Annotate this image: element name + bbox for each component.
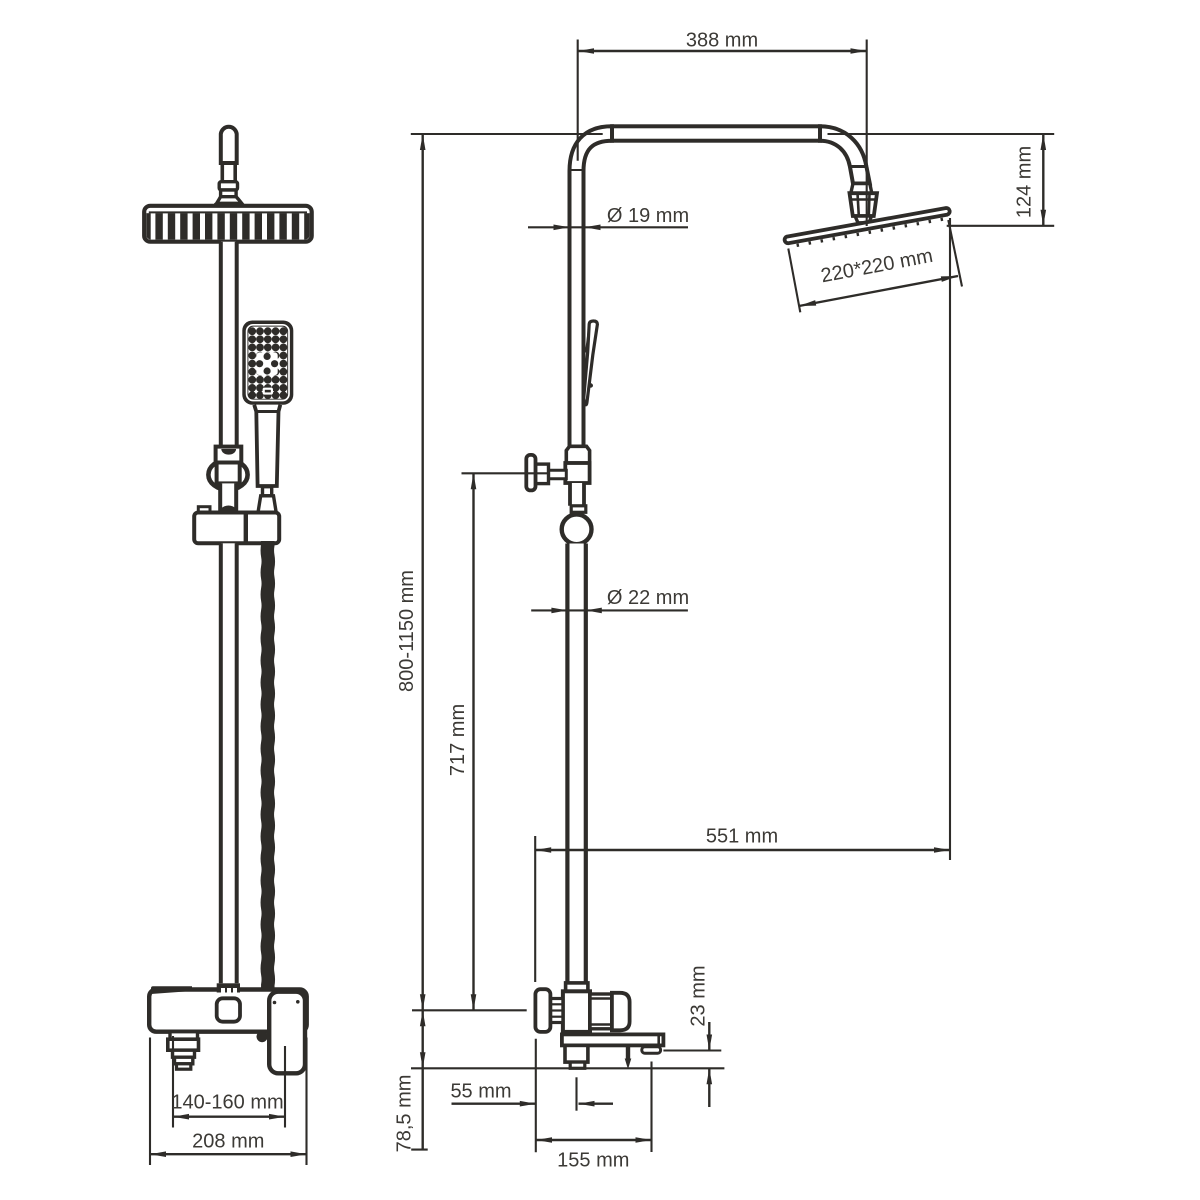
svg-text:551 mm: 551 mm (706, 826, 778, 848)
svg-text:800-1150 mm: 800-1150 mm (396, 570, 418, 692)
svg-text:78,5 mm: 78,5 mm (394, 1075, 416, 1153)
svg-text:124 mm: 124 mm (1014, 146, 1036, 218)
svg-text:388 mm: 388 mm (686, 30, 758, 52)
svg-text:55 mm: 55 mm (450, 1080, 511, 1102)
svg-text:155 mm: 155 mm (557, 1150, 629, 1172)
svg-text:208 mm: 208 mm (192, 1131, 264, 1153)
svg-text:23 mm: 23 mm (688, 965, 710, 1026)
svg-text:717 mm: 717 mm (447, 704, 469, 776)
svg-text:Ø 22 mm: Ø 22 mm (607, 587, 689, 609)
svg-text:Ø 19 mm: Ø 19 mm (607, 205, 689, 227)
svg-text:140-160 mm: 140-160 mm (171, 1091, 283, 1113)
